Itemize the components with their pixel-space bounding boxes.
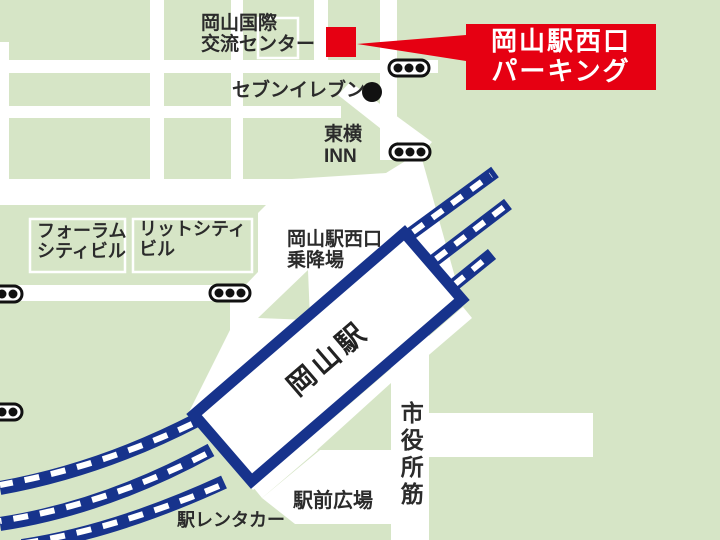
road-vertical-3: [314, 0, 328, 61]
label-forum-city-building: フォーラム シティビル: [37, 222, 126, 262]
callout-line2: パーキング: [491, 57, 630, 87]
traffic-light-icon: [210, 285, 250, 301]
label-lit-line1: リットシティ: [139, 220, 246, 240]
traffic-light-icon: [0, 286, 22, 302]
label-toyoko-inn: 東横 INN: [324, 124, 362, 168]
label-lit-line2: ビル: [139, 240, 246, 260]
label-forum-line2: シティビル: [37, 242, 126, 262]
label-kokusai-exchange-center: 岡山国際 交流センター: [201, 14, 315, 56]
road-vertical-1: [150, 0, 164, 180]
label-west-exit-boarding-area: 岡山駅西口 乗降場: [287, 230, 382, 272]
traffic-light-icon: [390, 144, 430, 160]
traffic-light-icon: [0, 404, 22, 420]
road-horizontal-bottom: [429, 413, 593, 457]
traffic-light-icon: [389, 60, 429, 76]
label-toyoko-line2: INN: [324, 146, 362, 168]
road-horizontal-1: [0, 60, 438, 73]
parking-callout-text: 岡山駅西口 パーキング: [466, 24, 656, 90]
label-forum-line1: フォーラム: [37, 222, 126, 242]
road-horizontal-2: [0, 106, 341, 118]
parking-location-marker: [326, 27, 356, 57]
label-boarding-line2: 乗降場: [287, 251, 382, 272]
label-lit-city-building: リットシティ ビル: [139, 220, 246, 260]
label-station-rentacar: 駅レンタカー: [177, 511, 285, 531]
label-kokusai-line2: 交流センター: [201, 35, 315, 56]
label-ekimae-plaza: 駅前広場: [293, 490, 373, 512]
label-kokusai-line1: 岡山国際: [201, 14, 315, 35]
road-horizontal-3: [0, 179, 293, 205]
label-shiyakusho-street: 市役所筋: [397, 401, 422, 509]
label-seven-eleven: セブンイレブン: [232, 81, 365, 102]
callout-line1: 岡山駅西口: [491, 27, 631, 57]
okayama-station-west-map: 岡山国際 交流センター セブンイレブン 東横 INN フォーラム シティビル リ…: [0, 0, 720, 540]
label-boarding-line1: 岡山駅西口: [287, 230, 382, 251]
road-vertical-left-edge: [0, 42, 9, 205]
label-toyoko-line1: 東横: [324, 124, 362, 146]
